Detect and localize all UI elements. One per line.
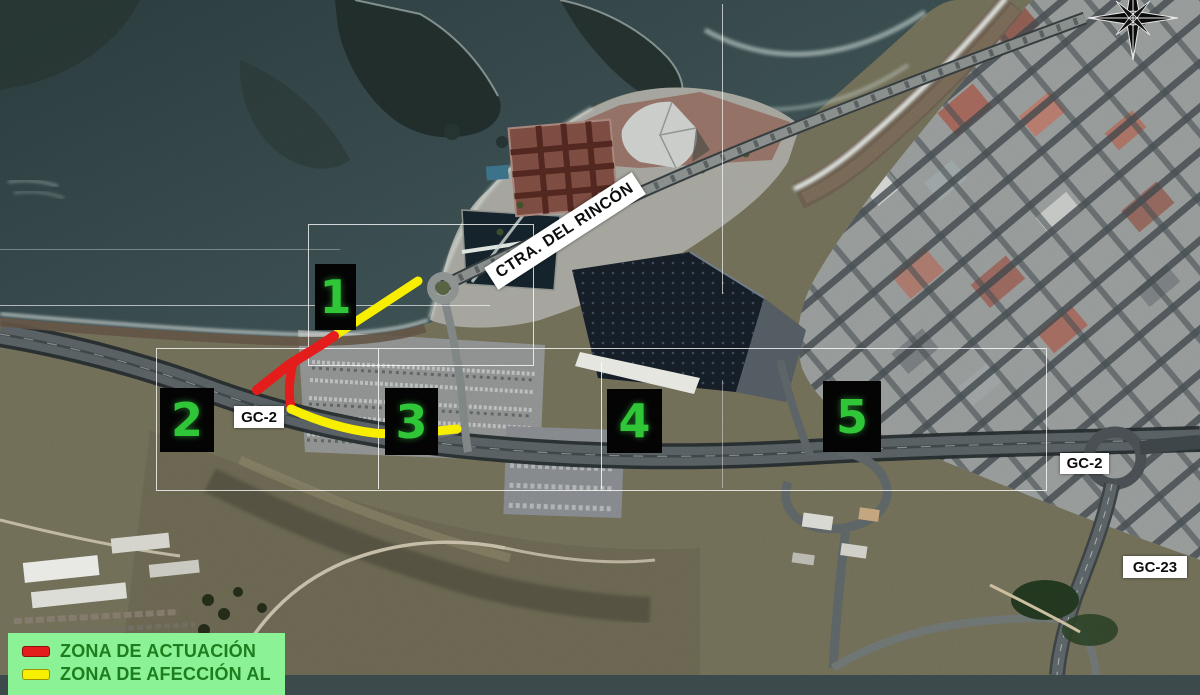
compass-rose-icon: [1087, 0, 1179, 64]
satellite-map-background: [0, 0, 1200, 675]
legend-row-actuacion: ZONA DE ACTUACIÓN: [8, 641, 256, 661]
sheet-marker-1: 1: [315, 264, 356, 330]
road-label-gc2-west: GC-2: [234, 406, 284, 428]
legend-label-actuacion: ZONA DE ACTUACIÓN: [60, 641, 256, 662]
legend: ZONA DE ACTUACIÓN ZONA DE AFECCIÓN AL: [8, 633, 285, 695]
grid-line: [722, 4, 723, 294]
sheet-marker-3: 3: [385, 388, 438, 455]
legend-label-afeccion: ZONA DE AFECCIÓN AL: [60, 664, 271, 685]
legend-swatch-afeccion: [22, 669, 50, 680]
sheet-divider: [378, 348, 379, 489]
legend-row-afeccion: ZONA DE AFECCIÓN AL: [8, 664, 271, 684]
sheet-marker-2: 2: [160, 388, 214, 452]
road-label-gc23: GC-23: [1123, 556, 1187, 578]
map-page: { "map": { "title": "Aerial plan of El R…: [0, 0, 1200, 675]
sheet-divider: [601, 362, 602, 489]
legend-swatch-actuacion: [22, 646, 50, 657]
grid-line: [0, 249, 340, 250]
road-label-gc2-east: GC-2: [1060, 453, 1109, 474]
sheet-marker-5: 5: [823, 381, 881, 452]
sheet-marker-4: 4: [607, 389, 662, 453]
